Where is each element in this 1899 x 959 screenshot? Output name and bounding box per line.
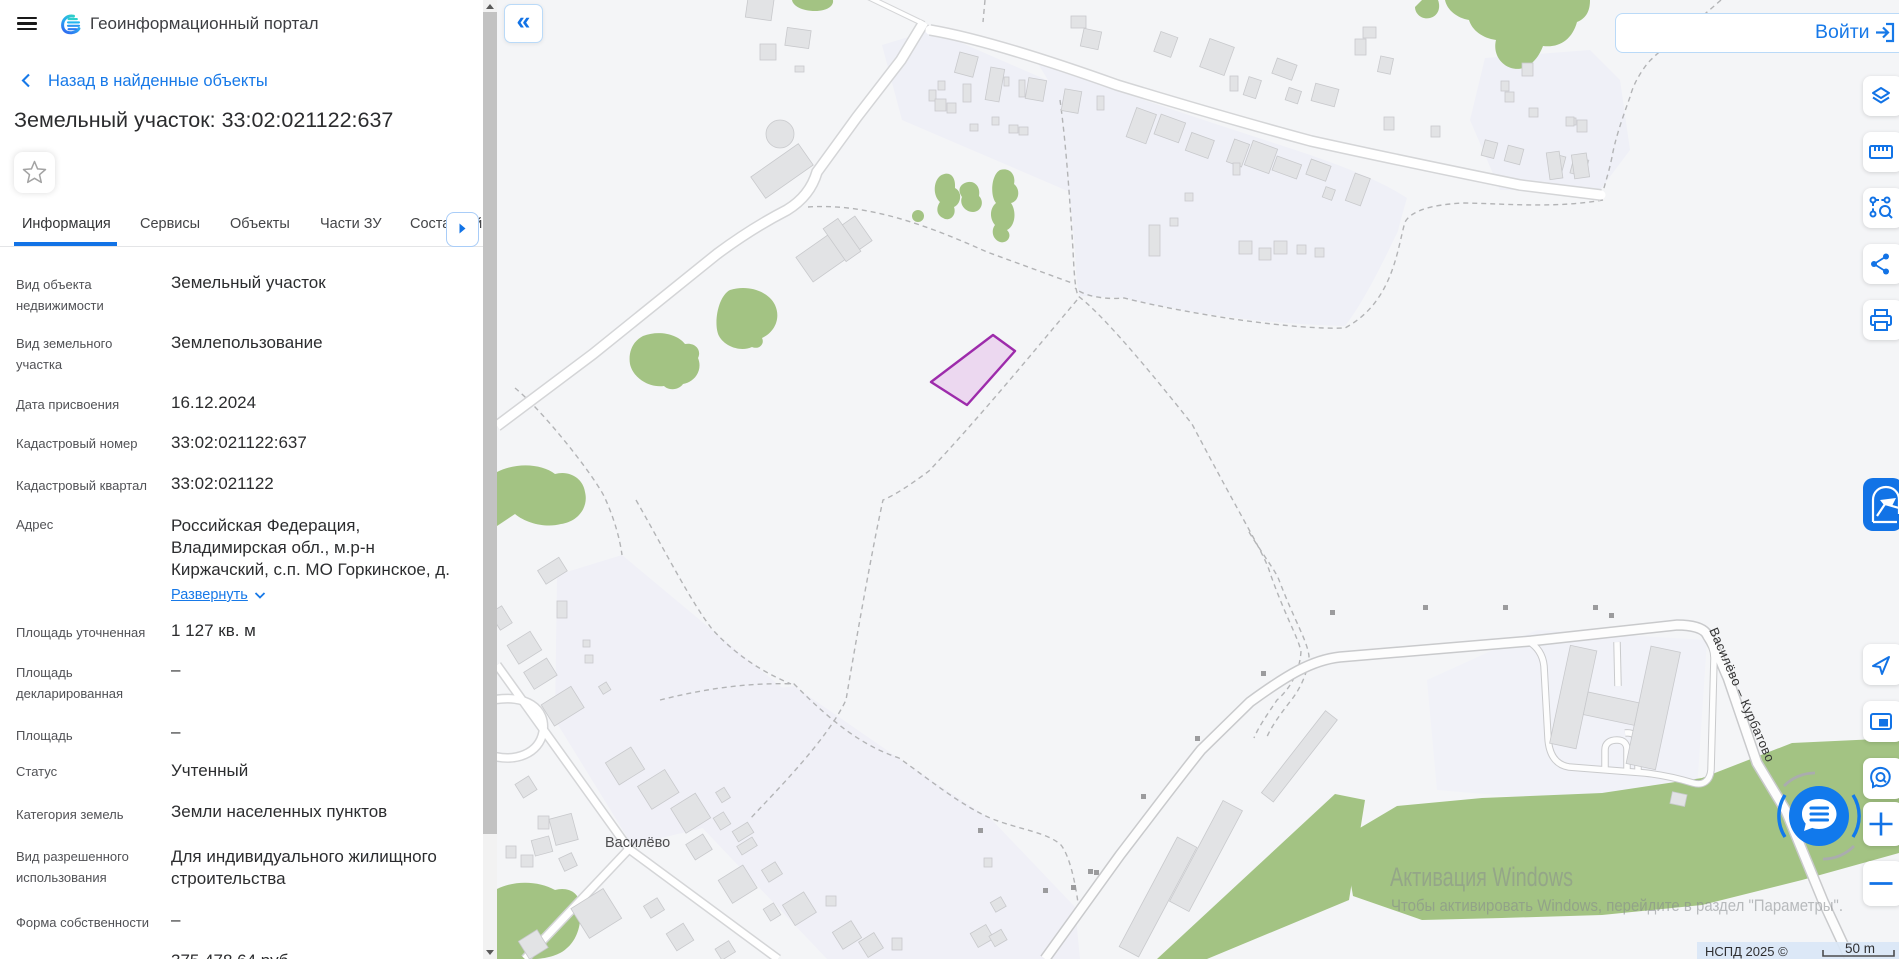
svg-text:50 m: 50 m [1845, 941, 1875, 956]
svg-text:Активация Windows: Активация Windows [1390, 862, 1573, 892]
svg-text:Василёво: Василёво [605, 835, 670, 851]
svg-text:Чтобы активировать Windows, пе: Чтобы активировать Windows, перейдите в … [1391, 897, 1843, 915]
